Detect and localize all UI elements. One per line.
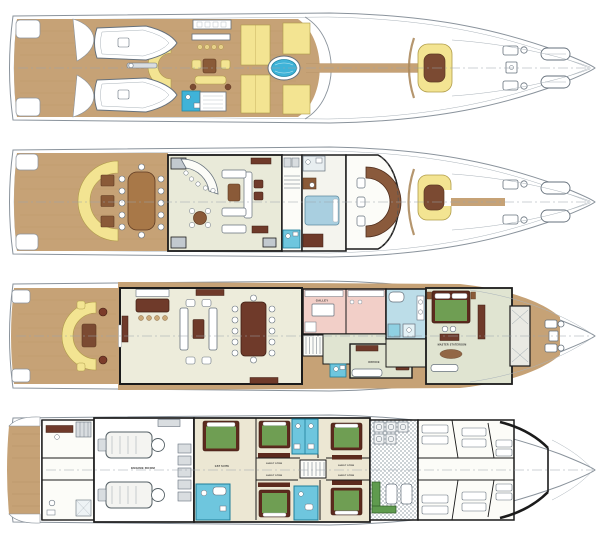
chair [99,308,107,316]
coffee-table [193,320,204,339]
crew-bunk [422,506,448,514]
card-table [194,212,207,225]
guest-suite-label: GST SUITE [215,465,230,468]
dining-chair [269,306,275,312]
office-label: OFFICE [368,360,379,364]
toilet [296,424,301,429]
dining-chair [158,212,164,218]
sink [418,300,422,304]
galley-counter [305,291,343,297]
crew-bunk [496,493,512,500]
dining-chair [251,357,257,363]
pillow [452,294,467,299]
armchair [202,300,211,307]
deck-main-deck: GALLEYOFFICEMASTER STATEROOM [10,281,596,391]
toilet [201,490,207,496]
settee-table [101,216,114,227]
pillow [335,424,358,428]
dining-chair [269,328,275,334]
deck-plan-canvas: GALLEYOFFICEMASTER STATEROOMENGINE ROOMG… [0,0,600,540]
wardrobe [332,481,362,486]
bar-stool [155,316,160,321]
desk [46,426,73,433]
crew-seat [401,484,412,504]
chair [99,356,107,364]
swim-platform [7,426,40,514]
vanity [440,334,459,341]
deck-lower-deck: ENGINE ROOMGST SUITEGUEST STRMGUEST STRM… [7,415,595,525]
desk-chair [55,435,60,440]
windlass [545,320,557,328]
toilet [286,234,291,239]
bar-stool [184,171,188,175]
dining-chair [158,224,164,230]
stern-stairs [16,234,38,250]
armchair [254,180,263,188]
armchair [186,300,195,307]
dining-chair [158,200,164,206]
crew-seat [386,484,397,504]
card-chair [189,222,194,227]
dining-chair [119,176,125,182]
helm-chair [357,216,365,226]
guest-stateroom-label: GUEST STRM [338,475,354,477]
bar-stool [163,316,168,321]
bed-cover [334,428,359,448]
bed-cover [334,491,359,511]
sun-pad [283,23,310,54]
pillow [435,294,450,299]
crew-bunk [496,449,512,456]
toilet [186,95,191,100]
lounge-table [203,59,216,73]
toilet [49,500,55,506]
toilet [407,328,412,333]
bar-counter [192,34,230,40]
toilet [334,367,339,372]
bed-cover [435,300,467,321]
equipment-rack [178,480,191,489]
engine-gearbox [152,439,165,452]
counter [348,291,384,297]
pillow [263,513,286,517]
stern-stairs [16,98,40,116]
engine [106,482,152,508]
nightstand [427,292,432,299]
washer [374,422,384,432]
sofa [222,208,246,216]
side-table [190,84,196,90]
crew-bunk [496,440,512,447]
sink [340,366,345,370]
bar-stool [219,45,224,50]
bed-cover [206,427,236,449]
equipment-rack [178,444,191,453]
desk-chair [310,183,315,188]
card-chair [205,208,210,213]
sofa [209,308,217,350]
sun-pad [283,85,310,114]
sink [305,504,313,510]
capstan [558,345,564,351]
toilet [309,424,314,429]
dining-chair [269,339,275,345]
wardrobe [258,483,290,488]
locker [292,158,299,167]
bed-cover [262,426,287,446]
deck-hatch [506,62,517,73]
lockers [76,422,91,437]
pillow [207,423,235,427]
back-cabinet [136,290,169,297]
sideboard [196,290,224,296]
guest-stateroom-label: GUEST STRM [266,475,282,477]
galley-appliance [305,322,316,332]
engine-room-label: ENGINE ROOM [131,466,155,470]
equipment-rack [158,420,180,427]
chair [450,326,456,332]
windlass [503,81,518,90]
stool [77,363,85,371]
crew-bunk [496,484,512,491]
sink [418,310,422,314]
bar-stool [139,316,144,321]
dining-table [128,172,155,230]
tv-cabinet [252,226,268,233]
toilet [306,160,311,165]
dining-chair [232,328,238,334]
pillow [335,511,358,515]
bar-cabinet [193,20,231,29]
dining-chair [158,176,164,182]
lounge-chair [192,60,201,69]
sink [194,103,200,108]
helm-chair [357,178,365,188]
crew-bunk [422,436,448,444]
dining-chair [269,350,275,356]
engine-gearbox [152,489,165,502]
nightstand [471,292,476,299]
sink [47,510,55,515]
armchair [202,357,211,364]
sofa [222,170,246,178]
dining-table [241,302,266,356]
washer [386,434,396,444]
armchair [186,357,195,364]
capstan [558,321,564,327]
dining-chair [119,200,125,206]
tender-console [118,90,129,99]
guest-stateroom-label: GUEST STRM [338,465,354,467]
side-table [225,84,231,90]
dumbwaiter [284,158,291,167]
deck-layers: GALLEYOFFICEMASTER STATEROOMENGINE ROOMG… [7,13,595,525]
dining-chair [119,224,125,230]
stool [77,301,85,309]
crew-bunk [462,428,486,436]
dining-chair [119,188,125,194]
lounge-sofa [195,76,226,84]
coffee-table [228,184,240,201]
fixture [350,300,354,304]
bar-stool [211,188,215,192]
armchair [254,192,263,200]
dining-chair [119,212,125,218]
stern-stairs [16,154,38,170]
dining-chair [251,295,257,301]
stern-stairs [12,290,30,303]
settee-table [101,175,114,186]
wardrobe [303,234,323,247]
galley-label: GALLEY [316,299,329,303]
cabinet [356,346,378,352]
table [82,324,96,347]
sink [293,232,298,236]
pillow [263,422,286,426]
sofa [222,225,246,233]
crane-base [129,63,133,67]
crew-bunk [462,492,486,500]
stair-hatch [263,238,276,247]
salon-bar [136,299,169,312]
washer [374,434,384,444]
deck-sun-deck [10,13,596,123]
equipment-rack [178,456,191,465]
office-sofa [352,369,382,377]
bathtub [389,292,404,302]
guest-bath [294,486,318,520]
stern-stairs [16,20,40,38]
bench [431,365,458,372]
dining-chair [158,188,164,194]
dining-chair [139,164,145,170]
pillow [333,199,338,222]
engine [106,432,152,458]
guest-stateroom-label: GUEST STRM [266,463,282,465]
crew-bench [372,506,396,513]
crew-bunk [422,495,448,503]
sideboard [250,378,278,384]
windlass [503,46,518,55]
windlass [503,180,518,189]
equipment-rack [178,468,191,477]
settee-table [101,196,114,207]
tv-cabinet [122,316,128,342]
fixture [358,300,362,304]
card-chair [205,222,210,227]
crew-bunk [422,425,448,433]
sink [308,444,314,449]
windlass [503,215,518,224]
card-chair [189,208,194,213]
bar-stool [189,177,193,181]
dining-chair [232,306,238,312]
bar-stool [196,182,200,186]
sofa [180,308,188,350]
bar-stool [203,186,207,190]
toilet [299,492,304,497]
master-label: MASTER STATEROOM [438,344,467,347]
lounge-chair [221,60,230,69]
dining-chair [232,350,238,356]
bar-stool [212,45,217,50]
washer [386,422,396,432]
washer [398,422,408,432]
dining-chair [232,339,238,345]
equipment-rack [178,492,191,501]
tv-cabinet [478,305,485,339]
sink [220,506,226,511]
stern-stairs [12,369,30,382]
rug [440,350,462,359]
engine-mount [98,489,106,501]
bar-stool [205,45,210,50]
dining-chair [139,232,145,238]
bathtub [213,487,226,495]
tender-console [118,38,129,47]
bar-stool [147,316,152,321]
bar-stool [198,45,203,50]
bed-cover [262,493,287,513]
shower [388,324,400,337]
hallway [386,339,426,367]
crew-bunk [462,503,486,511]
sink [316,158,322,163]
yacht-deck-plans: GALLEYOFFICEMASTER STATEROOMENGINE ROOMG… [0,0,600,540]
fore-table [424,185,444,210]
crew-bunk [462,439,486,447]
stair-hatch [171,237,186,248]
wardrobe [332,455,362,460]
wardrobe [258,453,290,458]
dining-chair [269,317,275,323]
chair [442,326,448,332]
windlass [545,344,557,352]
galley-island [312,304,334,316]
sideboard [251,158,271,164]
deck-bridge-deck [10,147,596,257]
engine-mount [98,439,106,451]
dining-chair [232,317,238,323]
sink [294,444,300,449]
